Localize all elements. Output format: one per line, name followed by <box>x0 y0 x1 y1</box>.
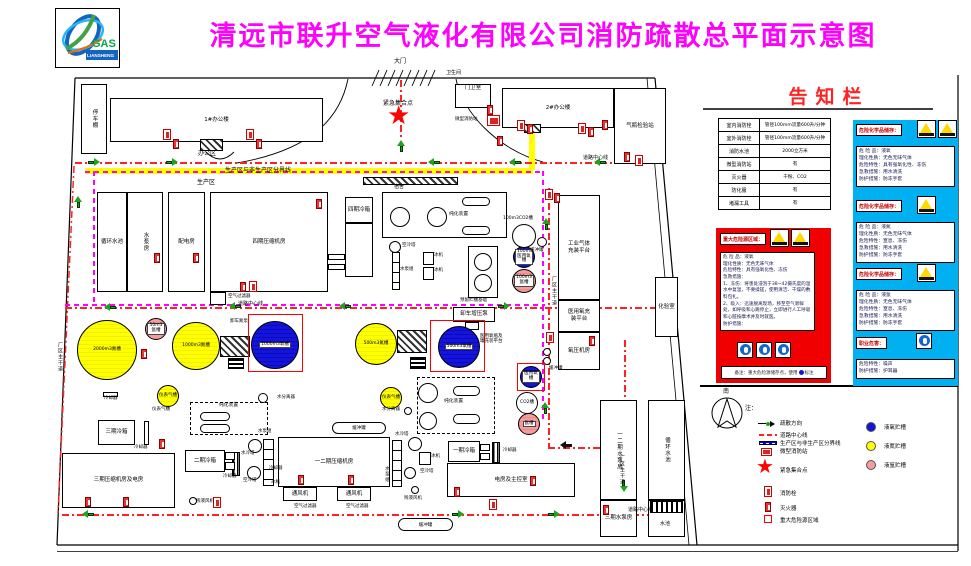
building-medical-filling: 医用氧充 装平台 <box>558 300 600 332</box>
building-coldbox-1: 一期冷箱 <box>448 441 480 462</box>
evacuation-arrow-icon <box>541 398 549 414</box>
building-compressor-3: 三期压缩机房及电房 <box>62 453 175 508</box>
hazard-line: 危险特性：噪声 <box>859 362 952 369</box>
hazard-line: 理化性质：无色无味气体 <box>859 300 952 307</box>
evacuation-arrow-icon <box>542 214 550 230</box>
map-caption: 卫生间 <box>446 70 461 76</box>
tank-label: 仪表气槽 <box>159 394 177 399</box>
legend-tank-dot <box>866 460 876 470</box>
zone-boundary-line <box>85 171 542 173</box>
equipment-rct <box>480 444 490 451</box>
building-label: 三期水泵房 <box>605 515 633 522</box>
map-caption: 医用氧瓶及 罐充装平台 <box>480 334 503 345</box>
evacuation-arrow-icon <box>556 441 572 449</box>
map-caption: 冰机 <box>434 253 443 258</box>
equipment-hatch <box>397 330 427 353</box>
hazard-panel-text: 危 险 品：液氩理化性质：无色无味气体危险特性：窒息、冻伤急救措施：用水清洗防护… <box>856 290 955 331</box>
equipment-rct <box>225 452 235 460</box>
table-row: 室外消防栓管径100mm流量600升/分钟 <box>719 132 831 145</box>
table-value: 干粉、CO2 <box>760 171 831 184</box>
fire-extinguisher-icon <box>588 127 594 137</box>
fire-extinguisher-icon <box>240 282 246 292</box>
storage-tank: 2000m3氮槽 <box>77 320 137 380</box>
major-hazard-zone-box <box>517 363 545 391</box>
fire-extinguisher-icon <box>316 199 322 209</box>
fire-extinguisher-icon <box>554 193 560 203</box>
building-label: 工业气体 充装平台 <box>568 241 590 255</box>
hazard-line: 急救措施：用水清洗 <box>859 246 952 253</box>
hazard-line: 1、冻伤：将患处浸泡于38~42摄氏度的温水中复温，不要揉搓，使用清洁、干燥的敷… <box>723 282 812 302</box>
footer-post: 标注 <box>805 370 814 376</box>
building-label: 卸车增压泵 <box>460 311 488 318</box>
hazard-line: 危 险 品：液氩 <box>859 293 952 300</box>
building-label: 三期冷箱 <box>105 429 127 436</box>
legend-label: 道路中心线 <box>780 431 808 439</box>
ppe-mandatory-icon <box>756 342 772 358</box>
table-value: 有 <box>760 197 831 210</box>
road-centerline <box>75 162 655 164</box>
notice-board-title: 告知栏 <box>700 82 958 109</box>
table-row: 室内消防栓管径100mm流量600升/分钟 <box>719 119 831 132</box>
fire-hydrant-icon <box>517 120 525 131</box>
hazard-line: 2、吸入：迅速脱离现场，移至空气新鲜处，如呼吸和心跳停止，立即进行人工呼吸和心脏… <box>723 302 812 322</box>
equipment-cap <box>200 424 230 433</box>
tank-label: 50m3氩槽 <box>147 323 165 335</box>
legend-hydrant-icon <box>764 486 772 497</box>
hazard-panel-header: 危险化学品储存： <box>856 268 902 280</box>
fire-hydrant-icon <box>545 189 553 200</box>
building-circulating-pool-right: 循环水池 <box>648 400 685 500</box>
equipment-barcode <box>650 501 683 513</box>
fire-extinguisher-icon <box>624 152 630 162</box>
map-caption: 道路中心线 <box>583 155 608 161</box>
map-caption: 厂区主干道 <box>619 455 625 485</box>
storage-tank: 1000m3氮槽 <box>172 322 220 370</box>
fire-extinguisher-icon <box>497 136 503 146</box>
map-caption: 水冷塔 <box>241 451 255 456</box>
map-caption: 冰机 <box>431 454 440 459</box>
legend-tank-dot <box>866 422 876 432</box>
map-caption: 厂区主干道 <box>551 276 557 306</box>
storage-tank: 仪表气槽 <box>157 385 179 407</box>
equipment-circle <box>404 467 416 479</box>
hazard-line: 急救措施：用水清洗 <box>859 170 952 177</box>
building-label: 停车棚 <box>91 109 98 129</box>
equipment-hatch <box>220 336 250 357</box>
fire-extinguisher-icon <box>487 105 493 115</box>
equipment-rct <box>419 452 431 465</box>
map-caption: 残液风机 <box>404 496 422 501</box>
equipment-rct <box>225 462 235 470</box>
hazard-panel-text: 危 险 品：液氮理化性质：无色无味气体危险特性：窒息、冻伤急救措施：用水清洗防护… <box>856 222 955 263</box>
evacuation-arrow-icon <box>424 158 440 166</box>
building-label: 2#办公楼 <box>546 105 571 112</box>
table-value: 管径100mm流量600升/分钟 <box>760 119 831 132</box>
building-industrial-filling: 工业气体 充装平台 <box>558 195 600 300</box>
equipment-stair <box>410 357 426 369</box>
table-key: 灭火器 <box>719 171 760 184</box>
building-label: 二期冷箱 <box>194 458 216 465</box>
tank-label: 仪表气槽 <box>382 396 400 401</box>
map-caption: 办公区 <box>198 150 216 157</box>
building-guard-room: 门卫室 <box>455 84 491 108</box>
legend-evac-symbol <box>758 420 778 427</box>
building-parking-shed: 停车棚 <box>81 84 107 154</box>
map-caption: 水池 <box>660 521 670 527</box>
evacuation-arrow-icon <box>397 136 405 152</box>
hazard-line: 危险特性：窒息、冻伤 <box>859 239 952 246</box>
storage-tank: 50m3氩槽 <box>145 318 167 340</box>
legend-label: 紧急集合点 <box>780 466 808 474</box>
building-label: 四期冷箱 <box>348 207 370 214</box>
building-label: 气瓶检验站 <box>626 123 654 130</box>
production-boundary-band <box>529 130 535 170</box>
legend-label: 疏散方向 <box>780 419 802 427</box>
map-caption: 冷却器 <box>269 466 283 471</box>
building-label: 四期压缩机房 <box>252 239 285 246</box>
building-label: 循环水池 <box>101 239 123 246</box>
map-caption: 道路中心线 <box>628 507 653 513</box>
hazard-panel-text: 危 险 品：液氧理化性质：无色无味气体危险特性：具有强氧化性、冻伤急救措施：用水… <box>856 146 955 187</box>
zone-boundary-line <box>65 304 545 306</box>
equipment-circle <box>411 486 419 494</box>
fire-extinguisher-icon <box>589 336 595 346</box>
map-caption: 空气过滤器 <box>228 294 251 299</box>
hazard-line: 防护措施：防冻手套 <box>859 253 952 260</box>
building-coldbox-2: 二期冷箱 <box>185 450 225 472</box>
hazard-panel-header: 危险化学品储存： <box>856 124 902 136</box>
map-caption: 大门 <box>394 58 406 65</box>
equipment-cap <box>462 226 490 235</box>
map-caption: 微型消防站 <box>455 117 478 122</box>
map-caption: 空冷塔 <box>420 469 434 474</box>
legend-label: 消防栓 <box>780 489 797 497</box>
map-caption: 厂区主干道 <box>57 342 63 372</box>
building-power-room: 配电房 <box>168 192 205 292</box>
major-hazard-footer: 备注：重大危险源储存点，使用标注 <box>721 366 827 379</box>
equipment-circle <box>419 412 437 430</box>
fire-extinguisher-icon <box>602 120 608 130</box>
major-hazard-text: 危 险 品：液氧理化性质：无色无味气体危险特性：具有强氧化性、冻伤急救措施：1、… <box>720 252 815 331</box>
warning-triangle-icon <box>938 120 957 138</box>
tank-label: 100m3氩槽 <box>514 275 534 287</box>
legend-tank-dot <box>866 441 876 451</box>
logo-liansheng-text: LIANSHENG <box>87 53 114 58</box>
legend-label: 灭火器 <box>780 504 797 512</box>
storage-tank <box>512 224 536 248</box>
map-caption: 冷却器 <box>104 396 118 401</box>
equipment-stk <box>392 440 402 487</box>
legend-tank-label: 液氩贮槽 <box>884 461 906 469</box>
fire-hydrant-icon <box>578 123 586 134</box>
building-label: 循环水池 <box>663 437 670 463</box>
fire-extinguisher-icon <box>159 439 165 449</box>
building-pump-house-12: 一二期水泵房 <box>600 400 637 500</box>
legend-note-label: 注： <box>745 405 757 412</box>
ppe-mandatory-icon <box>775 342 791 358</box>
map-caption: 水冷塔 <box>395 432 409 437</box>
compass-label: 南 <box>723 388 729 395</box>
table-row: 防化服有 <box>719 184 831 197</box>
equipment-rct <box>423 252 434 265</box>
equipment-rct <box>328 264 345 270</box>
building-air-filter-top <box>210 292 226 305</box>
table-value: 管径100mm流量600升/分钟 <box>760 132 831 145</box>
map-caption: 宿舍 <box>394 184 404 190</box>
map-caption: 空气过滤器 <box>294 504 317 509</box>
map-caption: 生产区与非生产区分界线 <box>225 167 291 174</box>
building-label: 通风机 <box>346 491 363 498</box>
table-key: 微型消防站 <box>719 158 760 171</box>
equipment-circle <box>258 393 268 403</box>
map-caption: 冷却器 <box>134 445 148 450</box>
equipment-rct <box>328 254 345 260</box>
hazard-panel-text: 危险特性：噪声防护措施：护耳器 <box>856 359 955 379</box>
major-hazard-header: 重大危险源区域： <box>720 233 766 245</box>
fire-extinguisher-icon <box>454 487 460 497</box>
fire-extinguisher-icon <box>141 349 147 359</box>
legend-label: 微型消防站 <box>780 447 808 455</box>
equipment-circle <box>408 437 422 451</box>
equipment-circle <box>543 348 551 356</box>
road-centerline <box>62 514 662 516</box>
table-value: 有 <box>760 184 831 197</box>
hazard-line: 急救措施： <box>723 275 812 282</box>
building-label: 化验室 <box>658 304 675 311</box>
building-label: 氧压机房 <box>568 348 590 355</box>
hazard-line: 危险特性：具有强氧化性、冻伤 <box>859 163 952 170</box>
storage-tank: CO2槽 <box>516 392 538 414</box>
evacuation-arrow-icon <box>78 510 94 518</box>
building-cylinder-inspection: 气瓶检验站 <box>614 88 666 164</box>
micro-fire-station-icon <box>487 115 500 126</box>
map-caption: 冷却器 <box>503 448 517 453</box>
tank-label: 氩槽 <box>523 421 536 428</box>
storage-tank: 氩槽 <box>518 413 540 435</box>
tank-label: 2000m3氮槽 <box>93 348 121 353</box>
fire-hydrant-icon <box>249 281 257 292</box>
map-caption: 纯化装置 <box>219 403 238 409</box>
assembly-point-star-icon: ★ <box>387 103 410 129</box>
hazard-line: 危 险 品：液氧 <box>723 255 812 262</box>
legend-label: 生产区与非生产区分界线 <box>780 439 841 447</box>
building-office-1: 1#办公楼 <box>110 98 323 142</box>
fire-extinguisher-icon <box>527 124 533 134</box>
fire-hydrant-icon <box>163 129 171 140</box>
map-caption: 水泵组 <box>258 429 272 434</box>
map-caption: 冰机 <box>434 268 443 273</box>
hazard-line: 防护措施：防冻手套 <box>859 321 952 328</box>
map-caption: 残液风机 <box>196 499 214 504</box>
map-caption: 生产区 <box>197 179 215 186</box>
tank-label: CO2槽 <box>520 401 534 406</box>
hazard-line: 危险特性：窒息、冻伤 <box>859 307 952 314</box>
warning-triangle-icon <box>917 120 936 138</box>
equipment-circle <box>474 253 492 271</box>
evacuation-arrow-icon <box>74 192 82 208</box>
noise-hazard-icon <box>916 333 932 349</box>
fire-equipment-table: 室内消防栓管径100mm流量600升/分钟室外消防栓管径100mm流量600升/… <box>718 118 831 210</box>
building-label: 配电房 <box>178 239 195 246</box>
storage-tank: 100m3氩槽 <box>512 269 536 293</box>
fire-extinguisher-icon <box>173 139 179 149</box>
map-caption: 道路中心线 <box>238 301 263 307</box>
equipment-circle <box>390 207 410 227</box>
evacuation-arrow-icon <box>548 510 564 518</box>
evacuation-arrow-icon <box>452 510 468 518</box>
fire-extinguisher-icon <box>256 139 262 149</box>
building-label: 一期冷箱 <box>453 448 475 455</box>
map-caption: 空气过滤器 <box>346 504 369 509</box>
building-label: 电房及主控室 <box>494 477 527 484</box>
equipment-cap <box>462 197 490 206</box>
warning-triangle-icon <box>917 196 936 214</box>
warning-triangle-icon <box>917 264 936 282</box>
equipment-vb <box>144 421 149 445</box>
equipment-circle <box>474 274 492 292</box>
map-caption: 冷却器 <box>223 474 237 479</box>
building-pump-house-top: 水泵房 <box>127 192 163 292</box>
building-circulating-pool-top: 循环水池 <box>97 192 127 292</box>
storage-tank: 500m3氮槽 <box>355 323 397 365</box>
company-logo: GAS LIANSHENG <box>55 8 120 68</box>
equipment-circle <box>427 207 447 227</box>
legend-danger-symbol <box>764 515 772 523</box>
equipment-stk <box>263 439 274 486</box>
hazard-line: 急救措施：用水清洗 <box>859 314 952 321</box>
building-coldbox-4: 四期冷箱 <box>345 197 373 223</box>
fire-extinguisher-icon <box>603 505 609 515</box>
fire-extinguisher-icon <box>298 475 304 485</box>
hazard-line: 危 险 品：液氮 <box>859 225 952 232</box>
hazard-line: 防护措施：护耳器 <box>859 369 952 376</box>
equipment-circle <box>537 237 547 247</box>
equipment-rct <box>423 267 434 280</box>
building-compressor-12: 一二期压缩机房 <box>278 437 390 487</box>
page-title: 清远市联升空气液化有限公司消防疏散总平面示意图 <box>128 14 958 53</box>
building-label: 水泵房 <box>142 232 149 252</box>
equipment-rct <box>480 453 490 460</box>
fire-extinguisher-icon <box>123 497 129 507</box>
warning-triangle-icon <box>770 229 789 247</box>
map-caption: 空冷塔 <box>243 478 257 483</box>
evacuation-arrow-icon <box>498 302 514 310</box>
warning-triangle-icon <box>791 229 810 247</box>
hazard-line: 防护措施： <box>723 322 812 329</box>
fire-extinguisher-icon <box>348 475 354 485</box>
building-laboratory: 化验室 <box>655 277 678 337</box>
hazard-panel-header: 危险化学品储存： <box>856 200 902 212</box>
equipment-stair <box>228 358 244 369</box>
storage-tank: 仪表气槽 <box>380 387 402 409</box>
map-caption: 水分离器 <box>382 407 400 412</box>
legend-extinguisher-icon <box>765 502 771 512</box>
hazard-line: 危 险 品：液氧 <box>859 149 952 156</box>
ppe-mandatory-icon <box>737 342 753 358</box>
building-label: 1#办公楼 <box>204 117 229 124</box>
equipment-circle <box>404 407 412 415</box>
major-hazard-zone-box <box>248 314 303 372</box>
table-key: 消防水池 <box>719 145 760 158</box>
table-row: 堵漏工具有 <box>719 197 831 210</box>
map-caption: 100m3CO2槽 <box>503 216 533 221</box>
equipment-cap <box>453 414 480 424</box>
hazard-line: 理化性质：无色无味气体 <box>859 232 952 239</box>
hazard-line: 理化性质：无色无味气体 <box>859 156 952 163</box>
equipment-cap: 缓冲罐 <box>332 422 386 434</box>
table-key: 堵漏工具 <box>719 197 760 210</box>
map-caption: 卸车氮泵 <box>230 319 248 324</box>
hazard-panel-header: 职业危害： <box>856 337 887 349</box>
map-caption: 缓冲罐 <box>530 248 544 253</box>
plan-canvas: GAS LIANSHENG 清远市联升空气液化有限公司消防疏散总平面示意图 <box>0 0 971 566</box>
map-caption: 冰机 <box>271 480 280 485</box>
map-caption: 纯化装置 <box>449 212 468 218</box>
legend-star-symbol: ★ <box>756 456 774 476</box>
building-coldbox-4-col <box>345 223 373 277</box>
table-row: 微型消防站有 <box>719 158 831 171</box>
tank-label: 1000m3氮槽 <box>182 344 210 349</box>
map-caption: 水泵组 <box>400 267 414 272</box>
hazard-line: 防护措施：防冻手套 <box>859 177 952 184</box>
legend-tank-label: 液氮贮槽 <box>884 442 906 450</box>
legend-centerline-symbol <box>759 434 777 436</box>
fire-hydrant-icon <box>546 332 554 343</box>
evacuation-arrow-icon <box>335 302 351 310</box>
equipment-cap <box>200 412 230 421</box>
building-compressor-4: 四期压缩机房 <box>210 192 328 292</box>
fire-hydrant-icon <box>213 497 221 508</box>
equipment-hatch <box>363 177 458 185</box>
evacuation-arrow-icon <box>88 158 104 166</box>
legend-label: 重大危险源区域 <box>780 516 819 524</box>
fire-extinguisher-icon <box>530 476 536 486</box>
hazard-line: 危险特性：具有强氧化性、冻伤 <box>723 268 812 275</box>
map-caption: 缓冲罐 <box>549 366 563 371</box>
legend-tank-label: 液氧贮槽 <box>884 423 906 431</box>
building-label: 门卫室 <box>465 85 482 92</box>
fire-hydrant-icon <box>635 155 643 166</box>
map-caption: 空冷塔 <box>402 243 416 248</box>
building-fan-2: 通风机 <box>337 487 371 501</box>
compass-icon <box>712 398 742 428</box>
equipment-cap: 缓冲罐 <box>398 518 453 531</box>
map-caption: 水分离器 <box>277 395 295 400</box>
evacuation-arrow-icon <box>166 158 182 166</box>
table-row: 消防水池2000立方米 <box>719 145 831 158</box>
fire-extinguisher-icon <box>85 497 91 507</box>
building-fan-1: 通风机 <box>283 487 317 501</box>
map-caption: 纯化装置 <box>444 399 463 405</box>
zone-boundary-line <box>93 171 95 305</box>
table-key: 室内消防栓 <box>719 119 760 132</box>
building-label: 一二期压缩机房 <box>315 459 354 466</box>
evacuation-arrow-icon <box>100 303 116 311</box>
logo-globe-icon: GAS LIANSHENG <box>56 9 119 67</box>
fire-extinguisher-icon <box>193 253 199 263</box>
table-value: 有 <box>760 158 831 171</box>
logo-gas-text: GAS <box>92 38 116 50</box>
tank-label: 500m3氮槽 <box>364 342 389 347</box>
footer-pre: 备注：重大危险源储存点，使用 <box>735 370 798 376</box>
table-value: 2000立方米 <box>760 145 831 158</box>
building-label: 通风机 <box>292 491 309 498</box>
table-key: 防化服 <box>719 184 760 197</box>
building-label: 三期压缩机房及电房 <box>94 477 144 484</box>
blue-dot-icon <box>799 370 804 375</box>
map-caption: 仪表气槽 <box>152 407 170 412</box>
equipment-stk <box>392 252 400 290</box>
